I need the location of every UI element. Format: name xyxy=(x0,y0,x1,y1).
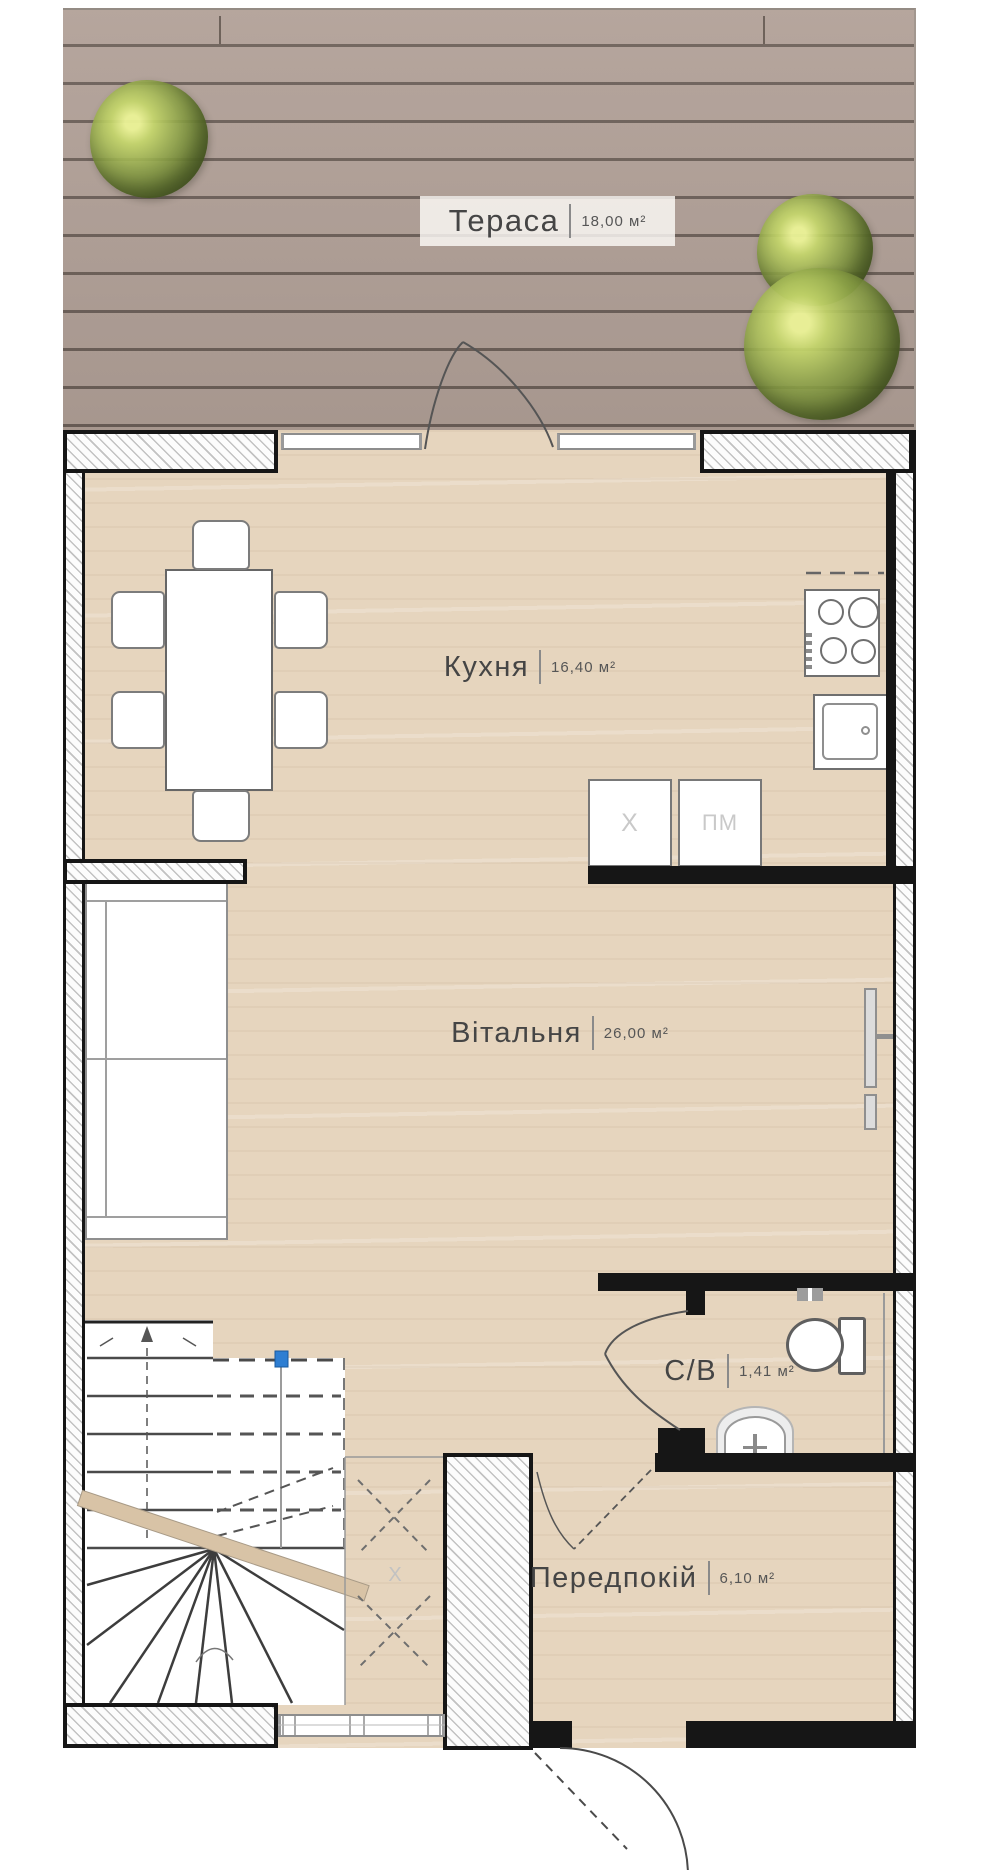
wall-bottom-entry-left xyxy=(533,1721,572,1748)
chair xyxy=(192,790,250,842)
window-terrace-left xyxy=(281,433,422,450)
wall-hall-partition xyxy=(443,1453,533,1750)
wall-exterior-right xyxy=(893,430,916,1748)
wall-bottom-right xyxy=(686,1721,916,1748)
stair-winder-area xyxy=(85,1548,345,1705)
stair-flight-area xyxy=(85,1320,213,1548)
wall-top-right xyxy=(700,430,913,473)
dishwasher-label: ПМ xyxy=(678,779,762,867)
understairs-label: Х xyxy=(382,1560,408,1590)
chair xyxy=(111,591,165,649)
bush-icon xyxy=(90,80,208,198)
sofa xyxy=(85,880,228,1240)
fridge-label: Х xyxy=(588,779,672,867)
window-terrace-right xyxy=(557,433,696,450)
stair-upper-dashed-area xyxy=(213,1358,345,1548)
room-label-living: Вітальня 26,00 м² xyxy=(410,1012,710,1054)
dining-table xyxy=(165,569,273,791)
wall-exterior-left xyxy=(63,430,85,1748)
window-bottom xyxy=(278,1714,445,1737)
chair xyxy=(274,691,328,749)
bush-icon xyxy=(744,268,900,420)
wall-bathroom-bottom xyxy=(655,1453,916,1472)
wall-kitchen-living-right xyxy=(588,866,916,884)
room-label-hall: Передпокій 6,10 м² xyxy=(480,1556,825,1600)
wall-kitchen-living-left xyxy=(63,859,247,884)
deck-plank-seam xyxy=(219,16,221,44)
room-label-terrace: Тераса 18,00 м² xyxy=(420,196,675,246)
room-label-kitchen: Кухня 16,40 м² xyxy=(395,646,665,688)
entrance-door-swing xyxy=(535,1748,688,1870)
wall-bathroom-top xyxy=(598,1273,916,1291)
chair xyxy=(274,591,328,649)
wall-top-left xyxy=(63,430,278,473)
kitchen-sink-icon xyxy=(813,694,890,770)
room-label-bathroom: С/В 1,41 м² xyxy=(622,1350,837,1392)
floor-plan: Х ПМ Х xyxy=(0,0,999,1870)
water-valve-icon xyxy=(797,1288,823,1301)
chair xyxy=(192,520,250,570)
wall-bottom-left xyxy=(63,1703,278,1748)
chair xyxy=(111,691,165,749)
stove-icon xyxy=(804,589,880,677)
radiator-icon xyxy=(864,988,877,1130)
deck-plank-seam xyxy=(763,16,765,44)
wall-bathroom-door-stub-top xyxy=(686,1291,705,1315)
wall-kitchen-east xyxy=(886,473,893,868)
